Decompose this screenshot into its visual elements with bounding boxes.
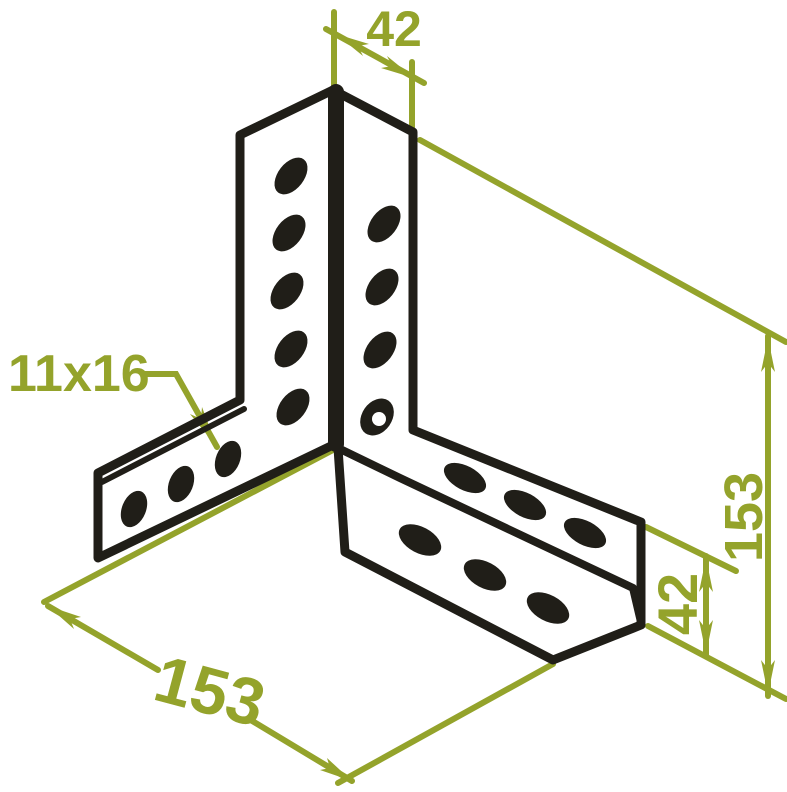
slot-hole	[357, 325, 403, 374]
slot-hole	[116, 487, 152, 531]
slot-hole	[499, 484, 551, 527]
slot-hole	[268, 324, 314, 373]
slot-hole	[359, 262, 405, 311]
dim-bottom-length-value: 153	[147, 641, 273, 741]
slot-hole	[394, 518, 447, 563]
dimension-labels-group: 42 11x16 153 42 153	[8, 1, 774, 741]
dim-bottom-extension-right	[338, 664, 553, 783]
dim-right-leg-width-value: 42	[646, 573, 709, 635]
slot-hole	[270, 382, 316, 431]
slot-leader-line	[144, 374, 217, 447]
slot-hole	[266, 208, 312, 257]
slot-pilot-dot	[372, 412, 386, 426]
slot-hole	[522, 586, 575, 631]
drawing-stage: 42 11x16 153 42 153	[0, 0, 787, 792]
dim-right-height-value: 153	[714, 472, 774, 562]
slot-hole	[163, 462, 199, 506]
slot-hole	[264, 266, 310, 315]
slot-hole	[559, 512, 611, 555]
slot-hole	[268, 151, 314, 200]
bracket-technical-drawing: 42 11x16 153 42 153	[0, 0, 787, 792]
slot-hole	[361, 199, 407, 248]
slot-hole	[459, 553, 512, 598]
slot-size-label: 11x16	[8, 345, 150, 403]
dim-height-extension-top	[420, 140, 786, 342]
dim-top-width-value: 42	[366, 1, 422, 57]
